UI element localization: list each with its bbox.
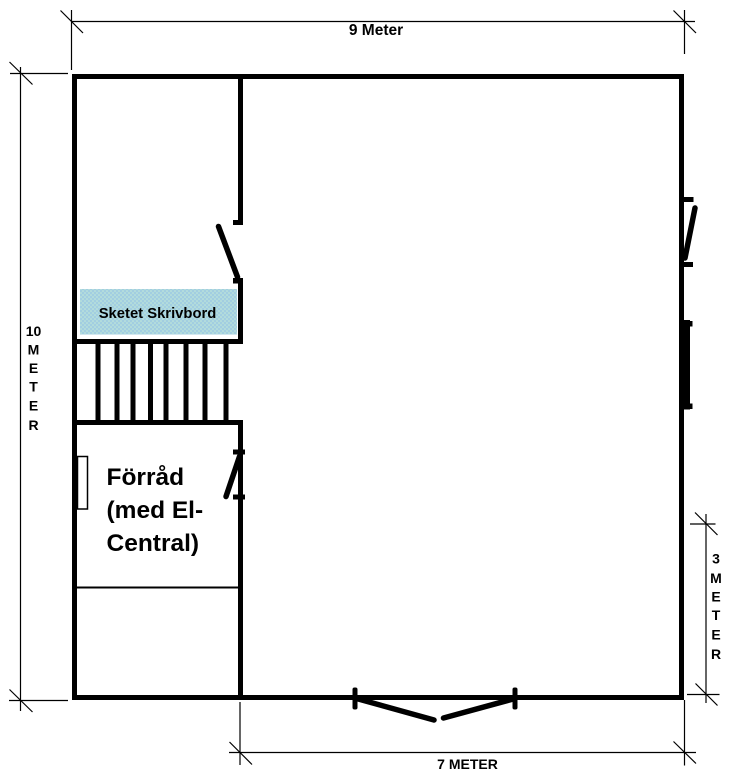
svg-text:(med El-: (med El- xyxy=(107,497,204,524)
svg-text:E: E xyxy=(29,398,38,414)
svg-text:Central): Central) xyxy=(107,530,200,557)
svg-text:E: E xyxy=(29,360,38,376)
svg-text:Förråd: Förråd xyxy=(107,464,185,491)
svg-text:E: E xyxy=(711,627,720,643)
svg-text:9 Meter: 9 Meter xyxy=(349,22,403,39)
svg-text:T: T xyxy=(29,379,38,395)
svg-text:Sketet Skrivbord: Sketet Skrivbord xyxy=(99,306,217,322)
svg-text:10: 10 xyxy=(26,323,42,339)
svg-text:3: 3 xyxy=(712,551,720,567)
svg-text:7 METER: 7 METER xyxy=(437,756,498,772)
svg-text:T: T xyxy=(712,607,721,623)
svg-text:R: R xyxy=(711,646,721,662)
svg-text:M: M xyxy=(710,570,722,586)
svg-text:M: M xyxy=(28,342,40,358)
svg-text:R: R xyxy=(28,417,38,433)
svg-text:E: E xyxy=(711,589,720,605)
